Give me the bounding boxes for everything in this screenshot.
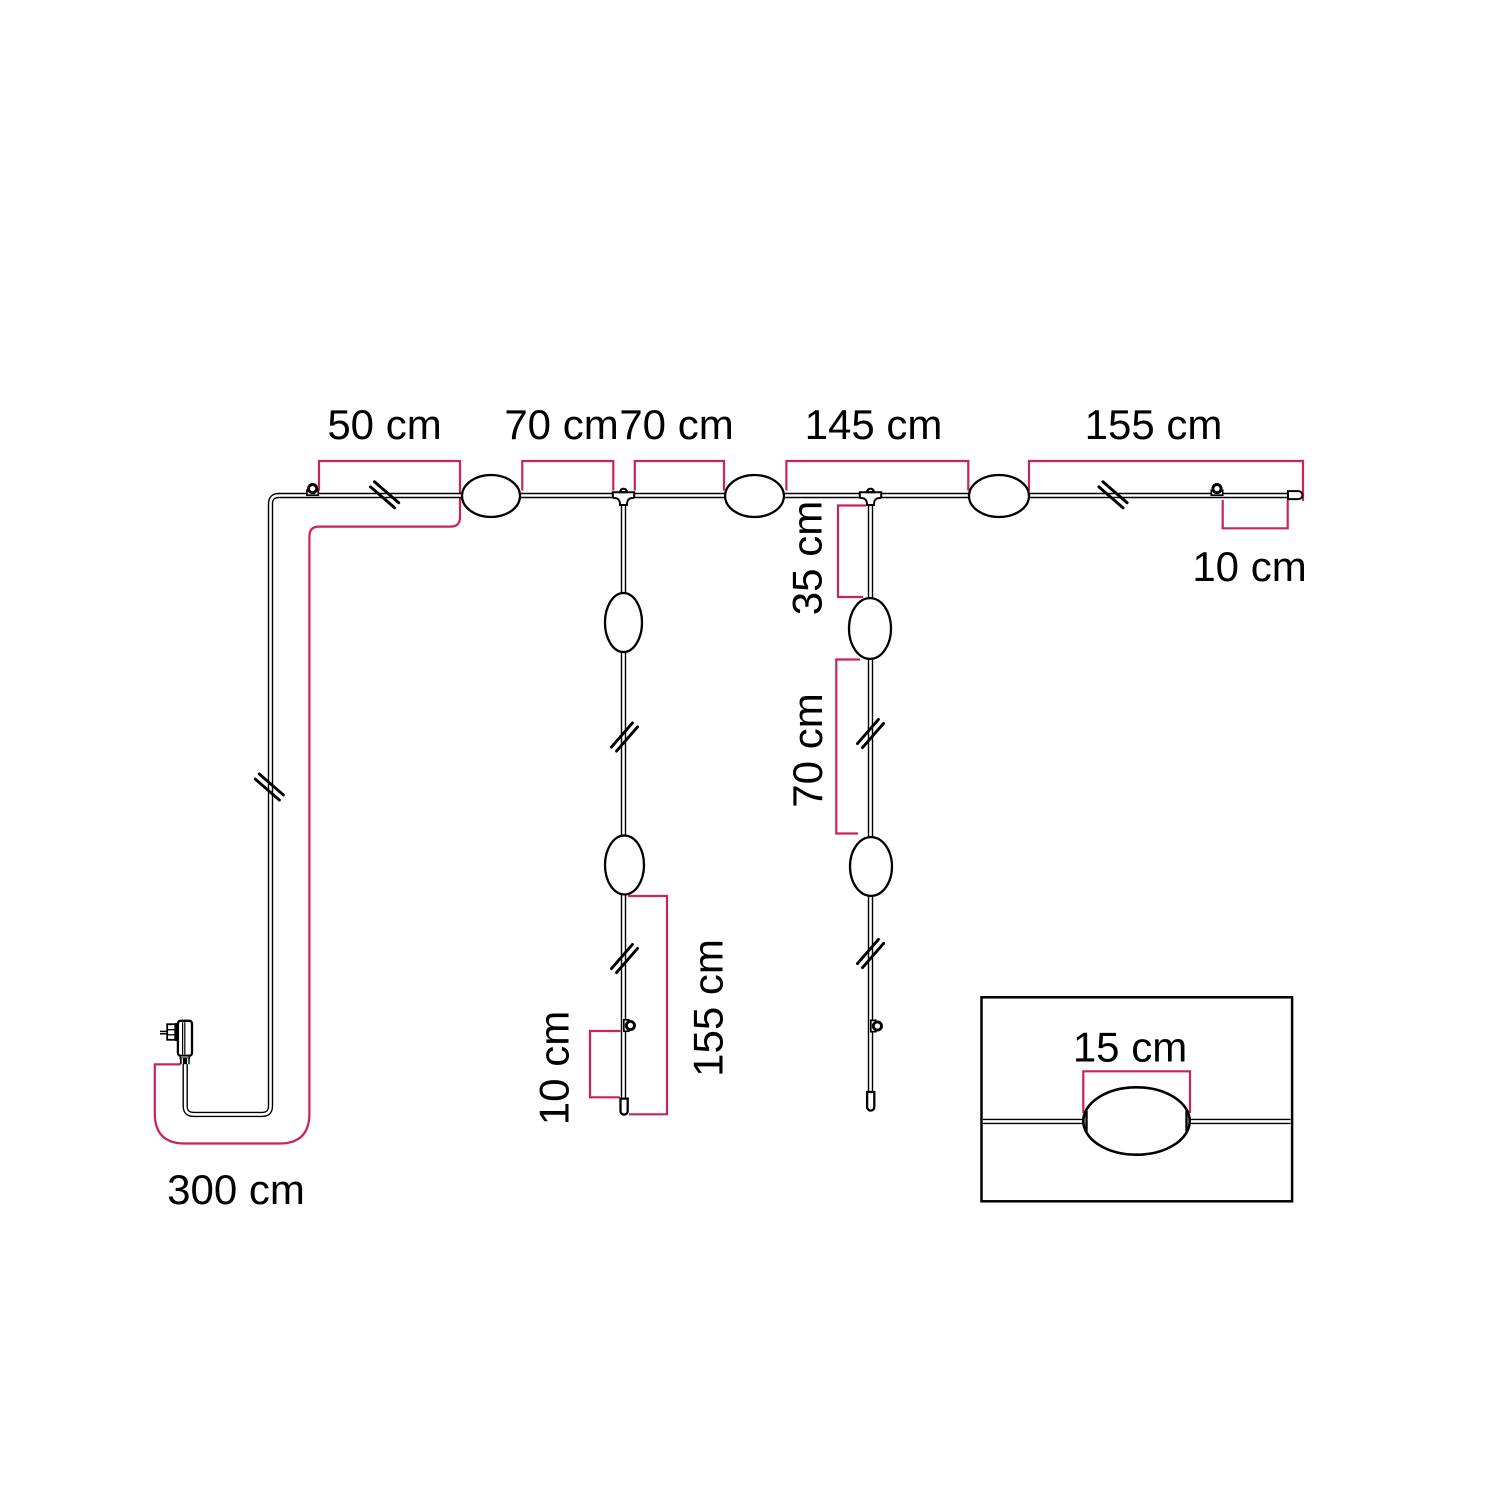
svg-text:10 cm: 10 cm: [531, 1011, 578, 1125]
svg-text:35 cm: 35 cm: [784, 501, 831, 615]
svg-text:155 cm: 155 cm: [1085, 401, 1223, 448]
svg-text:145 cm: 145 cm: [805, 401, 943, 448]
svg-text:10 cm: 10 cm: [1192, 543, 1306, 590]
svg-text:300 cm: 300 cm: [167, 1166, 305, 1213]
svg-text:70 cm: 70 cm: [784, 693, 831, 807]
svg-text:70 cm: 70 cm: [619, 401, 733, 448]
svg-text:50 cm: 50 cm: [327, 401, 441, 448]
svg-text:155 cm: 155 cm: [685, 939, 732, 1077]
svg-text:15 cm: 15 cm: [1073, 1024, 1187, 1071]
svg-text:70 cm: 70 cm: [504, 401, 618, 448]
